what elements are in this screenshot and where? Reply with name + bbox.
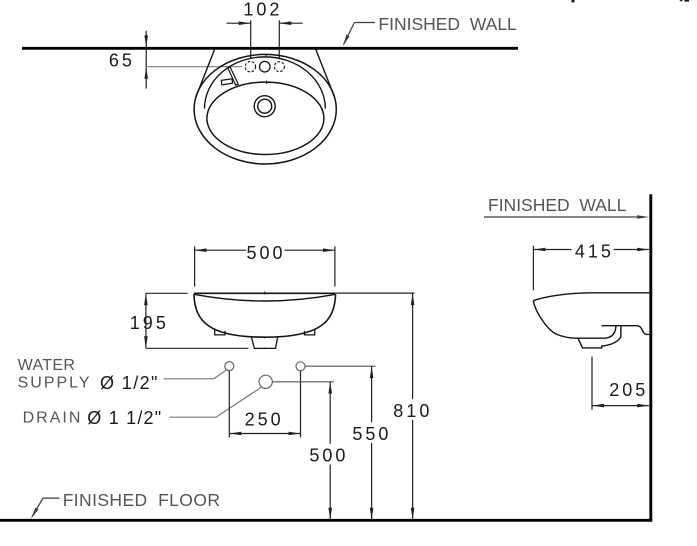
svg-text:500: 500 <box>247 243 286 263</box>
svg-text:DRAIN: DRAIN <box>23 410 83 427</box>
svg-text:500: 500 <box>309 446 348 466</box>
svg-text:FINISHED WALL: FINISHED WALL <box>488 195 627 215</box>
svg-text:550: 550 <box>352 424 391 444</box>
svg-text:WATER: WATER <box>18 357 76 374</box>
svg-text:FINISHED FLOOR: FINISHED FLOOR <box>63 490 221 510</box>
svg-text:Ø 1/2": Ø 1/2" <box>100 373 159 393</box>
svg-text:SUPPLY: SUPPLY <box>18 375 92 392</box>
svg-text:250: 250 <box>245 410 284 430</box>
svg-text:415: 415 <box>575 242 614 262</box>
svg-text:FINISHED WALL: FINISHED WALL <box>378 14 517 34</box>
svg-text:195: 195 <box>130 313 169 333</box>
svg-text:810: 810 <box>393 401 432 421</box>
svg-text:102: 102 <box>243 0 282 20</box>
svg-text:65: 65 <box>109 50 135 70</box>
svg-text:Ø 1 1/2": Ø 1 1/2" <box>87 408 162 428</box>
svg-text:205: 205 <box>609 380 648 400</box>
